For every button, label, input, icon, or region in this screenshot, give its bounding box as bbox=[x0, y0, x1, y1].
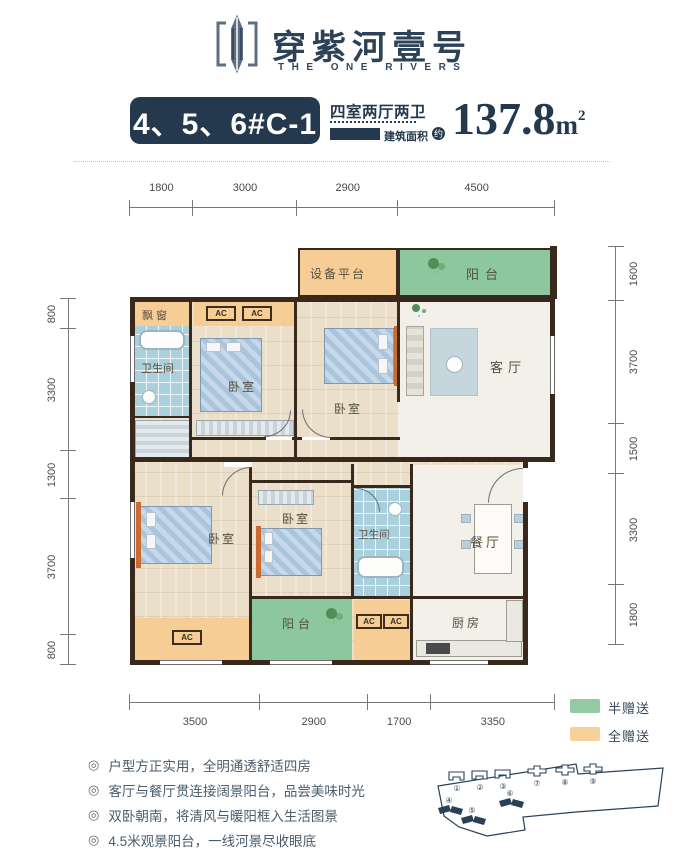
brand-name-en: THE ONE RIVERS bbox=[278, 62, 467, 73]
bullet-icon: ◎ bbox=[88, 807, 99, 823]
dim-label: 1500 bbox=[628, 427, 640, 471]
ac-unit: AC bbox=[356, 614, 382, 629]
dim-label: 2900 bbox=[335, 182, 359, 194]
area-superscript: 2 bbox=[578, 108, 586, 124]
legend-label-half-gift: 半赠送 bbox=[608, 698, 650, 717]
section-divider bbox=[74, 161, 610, 162]
bullet-icon: ◎ bbox=[88, 832, 99, 848]
svg-text:⑨: ⑨ bbox=[589, 777, 596, 786]
svg-text:⑥: ⑥ bbox=[506, 789, 513, 798]
room-label-bedroom-2: 卧室 bbox=[334, 400, 362, 417]
dim-label: 3300 bbox=[46, 368, 58, 412]
dimension-chain-top: 1800 3000 2900 4500 bbox=[130, 182, 555, 220]
legend-swatch-full-gift bbox=[570, 727, 600, 741]
room-label-dining: 餐厅 bbox=[470, 532, 502, 551]
dimension-chain-left: 800 3300 1300 3700 800 bbox=[40, 299, 78, 665]
area-bar bbox=[330, 128, 380, 140]
svg-text:①: ① bbox=[453, 784, 460, 793]
dim-label: 3350 bbox=[481, 716, 505, 728]
room-label-balcony-top: 阳台 bbox=[466, 264, 504, 283]
dim-label: 2900 bbox=[301, 716, 325, 728]
plant-icon bbox=[326, 608, 337, 619]
ac-unit: AC bbox=[206, 306, 236, 321]
ac-unit: AC bbox=[242, 306, 272, 321]
room-label-bedroom-3: 卧室 bbox=[208, 530, 236, 547]
ac-unit: AC bbox=[383, 614, 409, 629]
legend-swatch-half-gift bbox=[570, 699, 600, 713]
svg-text:②: ② bbox=[476, 783, 483, 792]
dim-label: 3700 bbox=[628, 340, 640, 384]
floor-plan: 设备平台 阳台 bbox=[130, 240, 555, 665]
layout-type: 四室两厅两卫 bbox=[330, 100, 426, 122]
feature-item: ◎客厅与餐厅贯连接阔景阳台，品尝美味时光 bbox=[88, 777, 365, 802]
feature-item: ◎4.5米观景阳台，一线河景尽收眼底 bbox=[88, 827, 365, 852]
feature-text: 客厅与餐厅贯连接阔景阳台，品尝美味时光 bbox=[108, 780, 365, 800]
area-value: 137.8m2 bbox=[452, 92, 586, 145]
dim-label: 1800 bbox=[149, 182, 173, 194]
svg-text:④: ④ bbox=[445, 796, 452, 805]
dim-label: 4500 bbox=[464, 182, 488, 194]
plant-icon bbox=[428, 258, 439, 269]
feature-item: ◎户型方正实用，全明通透舒适四房 bbox=[88, 752, 365, 777]
room-label-bedroom-4: 卧室 bbox=[282, 510, 310, 527]
feature-text: 4.5米观景阳台，一线河景尽收眼底 bbox=[108, 830, 316, 850]
dimension-chain-bottom: 3500 2900 1700 3350 bbox=[130, 690, 555, 728]
dim-label: 1600 bbox=[628, 252, 640, 296]
dim-label: 1800 bbox=[628, 593, 640, 637]
dim-label: 3000 bbox=[233, 182, 257, 194]
room-label-kitchen: 厨房 bbox=[452, 614, 482, 631]
bullet-icon: ◎ bbox=[88, 757, 99, 773]
brand-logo-icon bbox=[212, 14, 262, 74]
legend-label-full-gift: 全赠送 bbox=[608, 726, 650, 745]
dim-label: 3500 bbox=[183, 716, 207, 728]
room-label-bathroom-top: 卫生间 bbox=[141, 360, 174, 376]
unit-badge: 4、5、6#C-1 bbox=[130, 97, 320, 144]
area-unit: m bbox=[556, 110, 579, 140]
dim-label: 3700 bbox=[46, 545, 58, 589]
area-number: 137.8 bbox=[452, 93, 556, 144]
site-map: ① ② ③ ⑦ ⑧ ⑨ ④ ⑤ ⑥ bbox=[424, 760, 676, 854]
site-building-numbers: ① ② ③ ⑦ ⑧ ⑨ ④ ⑤ ⑥ bbox=[445, 777, 596, 815]
svg-text:⑤: ⑤ bbox=[468, 806, 475, 815]
bullet-icon: ◎ bbox=[88, 782, 99, 798]
ac-unit: AC bbox=[172, 630, 202, 645]
room-label-balcony-bottom: 阳台 bbox=[282, 615, 314, 632]
plant-icon bbox=[412, 304, 420, 312]
feature-text: 户型方正实用，全明通透舒适四房 bbox=[108, 755, 311, 775]
layout-dotted-rule bbox=[330, 121, 416, 123]
svg-text:⑦: ⑦ bbox=[533, 779, 540, 788]
dim-label: 800 bbox=[46, 628, 58, 672]
room-label-living: 客厅 bbox=[490, 357, 526, 376]
feature-item: ◎双卧朝南，将清风与暖阳框入生活图景 bbox=[88, 802, 365, 827]
room-label-equipment: 设备平台 bbox=[310, 265, 366, 282]
area-label: 建筑面积 bbox=[384, 128, 428, 144]
svg-text:⑧: ⑧ bbox=[561, 778, 568, 787]
room-label-bay-window: 飘窗 bbox=[142, 307, 170, 323]
dim-label: 1700 bbox=[387, 716, 411, 728]
room-label-bathroom-bottom: 卫生间 bbox=[358, 527, 390, 542]
dimension-chain-right: 1600 3700 1500 3300 1800 bbox=[606, 247, 644, 645]
dim-label: 1300 bbox=[46, 453, 58, 497]
feature-list: ◎户型方正实用，全明通透舒适四房 ◎客厅与餐厅贯连接阔景阳台，品尝美味时光 ◎双… bbox=[88, 752, 365, 852]
dim-label: 3300 bbox=[628, 508, 640, 552]
feature-text: 双卧朝南，将清风与暖阳框入生活图景 bbox=[108, 805, 338, 825]
poster-page: 穿紫河壹号 THE ONE RIVERS 4、5、6#C-1 四室两厅两卫 建筑… bbox=[0, 0, 683, 854]
room-label-bedroom-1: 卧室 bbox=[228, 378, 256, 395]
area-approx-badge: 约 bbox=[432, 127, 445, 140]
